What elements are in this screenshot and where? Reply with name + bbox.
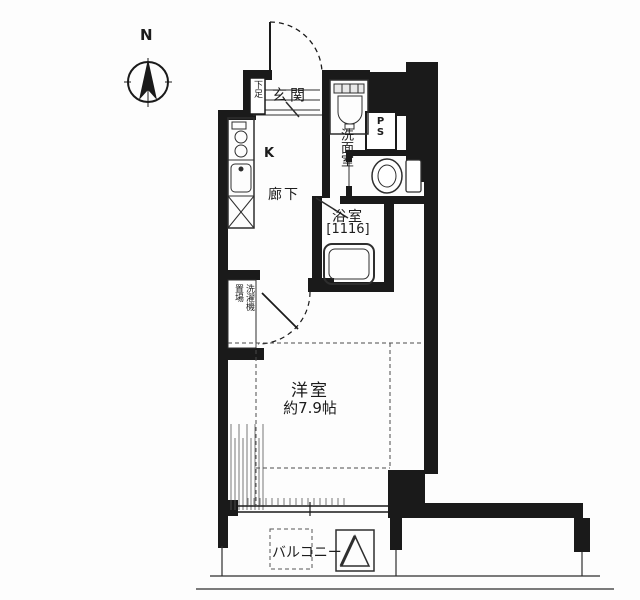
wall-segment (340, 196, 424, 204)
wall-segment (390, 518, 402, 550)
wall-segment (574, 518, 590, 552)
stove-burner-icon (235, 145, 247, 157)
bathtub-icon (324, 244, 374, 284)
bathroom-size-label: [1116] (316, 222, 380, 237)
balcony-label: バルコニー (272, 542, 342, 562)
main-room-size-label: 約7.9帖 (268, 397, 352, 418)
entrance-door-arc (270, 22, 322, 72)
window-hatch-band (231, 424, 263, 510)
room-door-leaf (262, 293, 298, 329)
compass-north-label: N (140, 26, 153, 44)
kitchen-counter (228, 118, 254, 228)
faucet-icon (239, 167, 243, 171)
balcony-outline (196, 546, 614, 589)
shoe-box-label: 下足 (251, 80, 262, 112)
wall-segment (388, 470, 425, 518)
balcony-window (238, 502, 388, 516)
pipe-space-label: PS (374, 116, 386, 148)
entrance-door (270, 22, 322, 72)
entrance-label: 玄関 (262, 84, 318, 105)
floor-plan: N 下足 玄関 K 廊下 洗面室 PS 浴室 [1116] 洗濯機置場 洋室 約… (0, 0, 640, 600)
compass-icon (124, 58, 172, 107)
wall-segment (218, 110, 228, 548)
room-door-arc (258, 292, 310, 344)
washbasin-icon (330, 80, 368, 134)
hallway-label: 廊下 (268, 184, 300, 204)
wall-segment (424, 178, 438, 474)
wall-segment (330, 70, 370, 80)
washer-space-label: 洗濯機置場 (230, 284, 254, 318)
walls (218, 62, 590, 552)
kitchen-label: K (264, 146, 274, 161)
toilet-icon (349, 159, 421, 193)
grill-icon (232, 122, 246, 129)
wall-segment (384, 196, 394, 292)
washroom-label: 洗面室 (338, 128, 352, 194)
wall-segment (322, 70, 330, 198)
stove-burner-icon (235, 131, 247, 143)
wall-segment (218, 348, 264, 360)
window-tick-row (248, 498, 344, 505)
floor-plan-drawing (0, 0, 640, 600)
refrigerator-space-icon (228, 196, 254, 228)
wall-segment (425, 503, 583, 518)
wall-segment (218, 270, 260, 280)
room-door (258, 292, 310, 344)
